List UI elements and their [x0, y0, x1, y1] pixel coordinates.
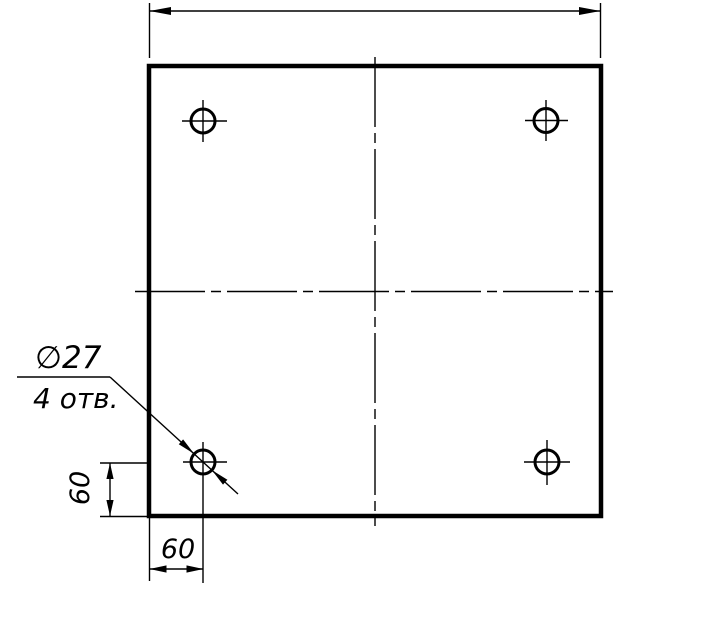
arrowhead-right: [187, 565, 204, 572]
top-dimension: [150, 3, 601, 58]
drawing-canvas: 60 60 ∅27 4 отв.: [0, 0, 713, 631]
hole-diameter-label: ∅27: [35, 340, 102, 376]
hole-count-label: 4 отв.: [33, 382, 119, 415]
arrowhead-left: [150, 7, 172, 15]
arrowhead-right: [579, 7, 601, 15]
engineering-drawing: 60 60 ∅27 4 отв.: [0, 0, 713, 631]
left-dimension-60: 60: [65, 463, 148, 517]
arrowhead-left: [150, 565, 167, 572]
dimension-value: 60: [161, 534, 195, 565]
dimension-value: 60: [65, 471, 96, 505]
arrowhead-up: [106, 463, 113, 479]
arrowhead-down: [106, 500, 113, 516]
bottom-dimension-60: 60: [150, 518, 204, 581]
